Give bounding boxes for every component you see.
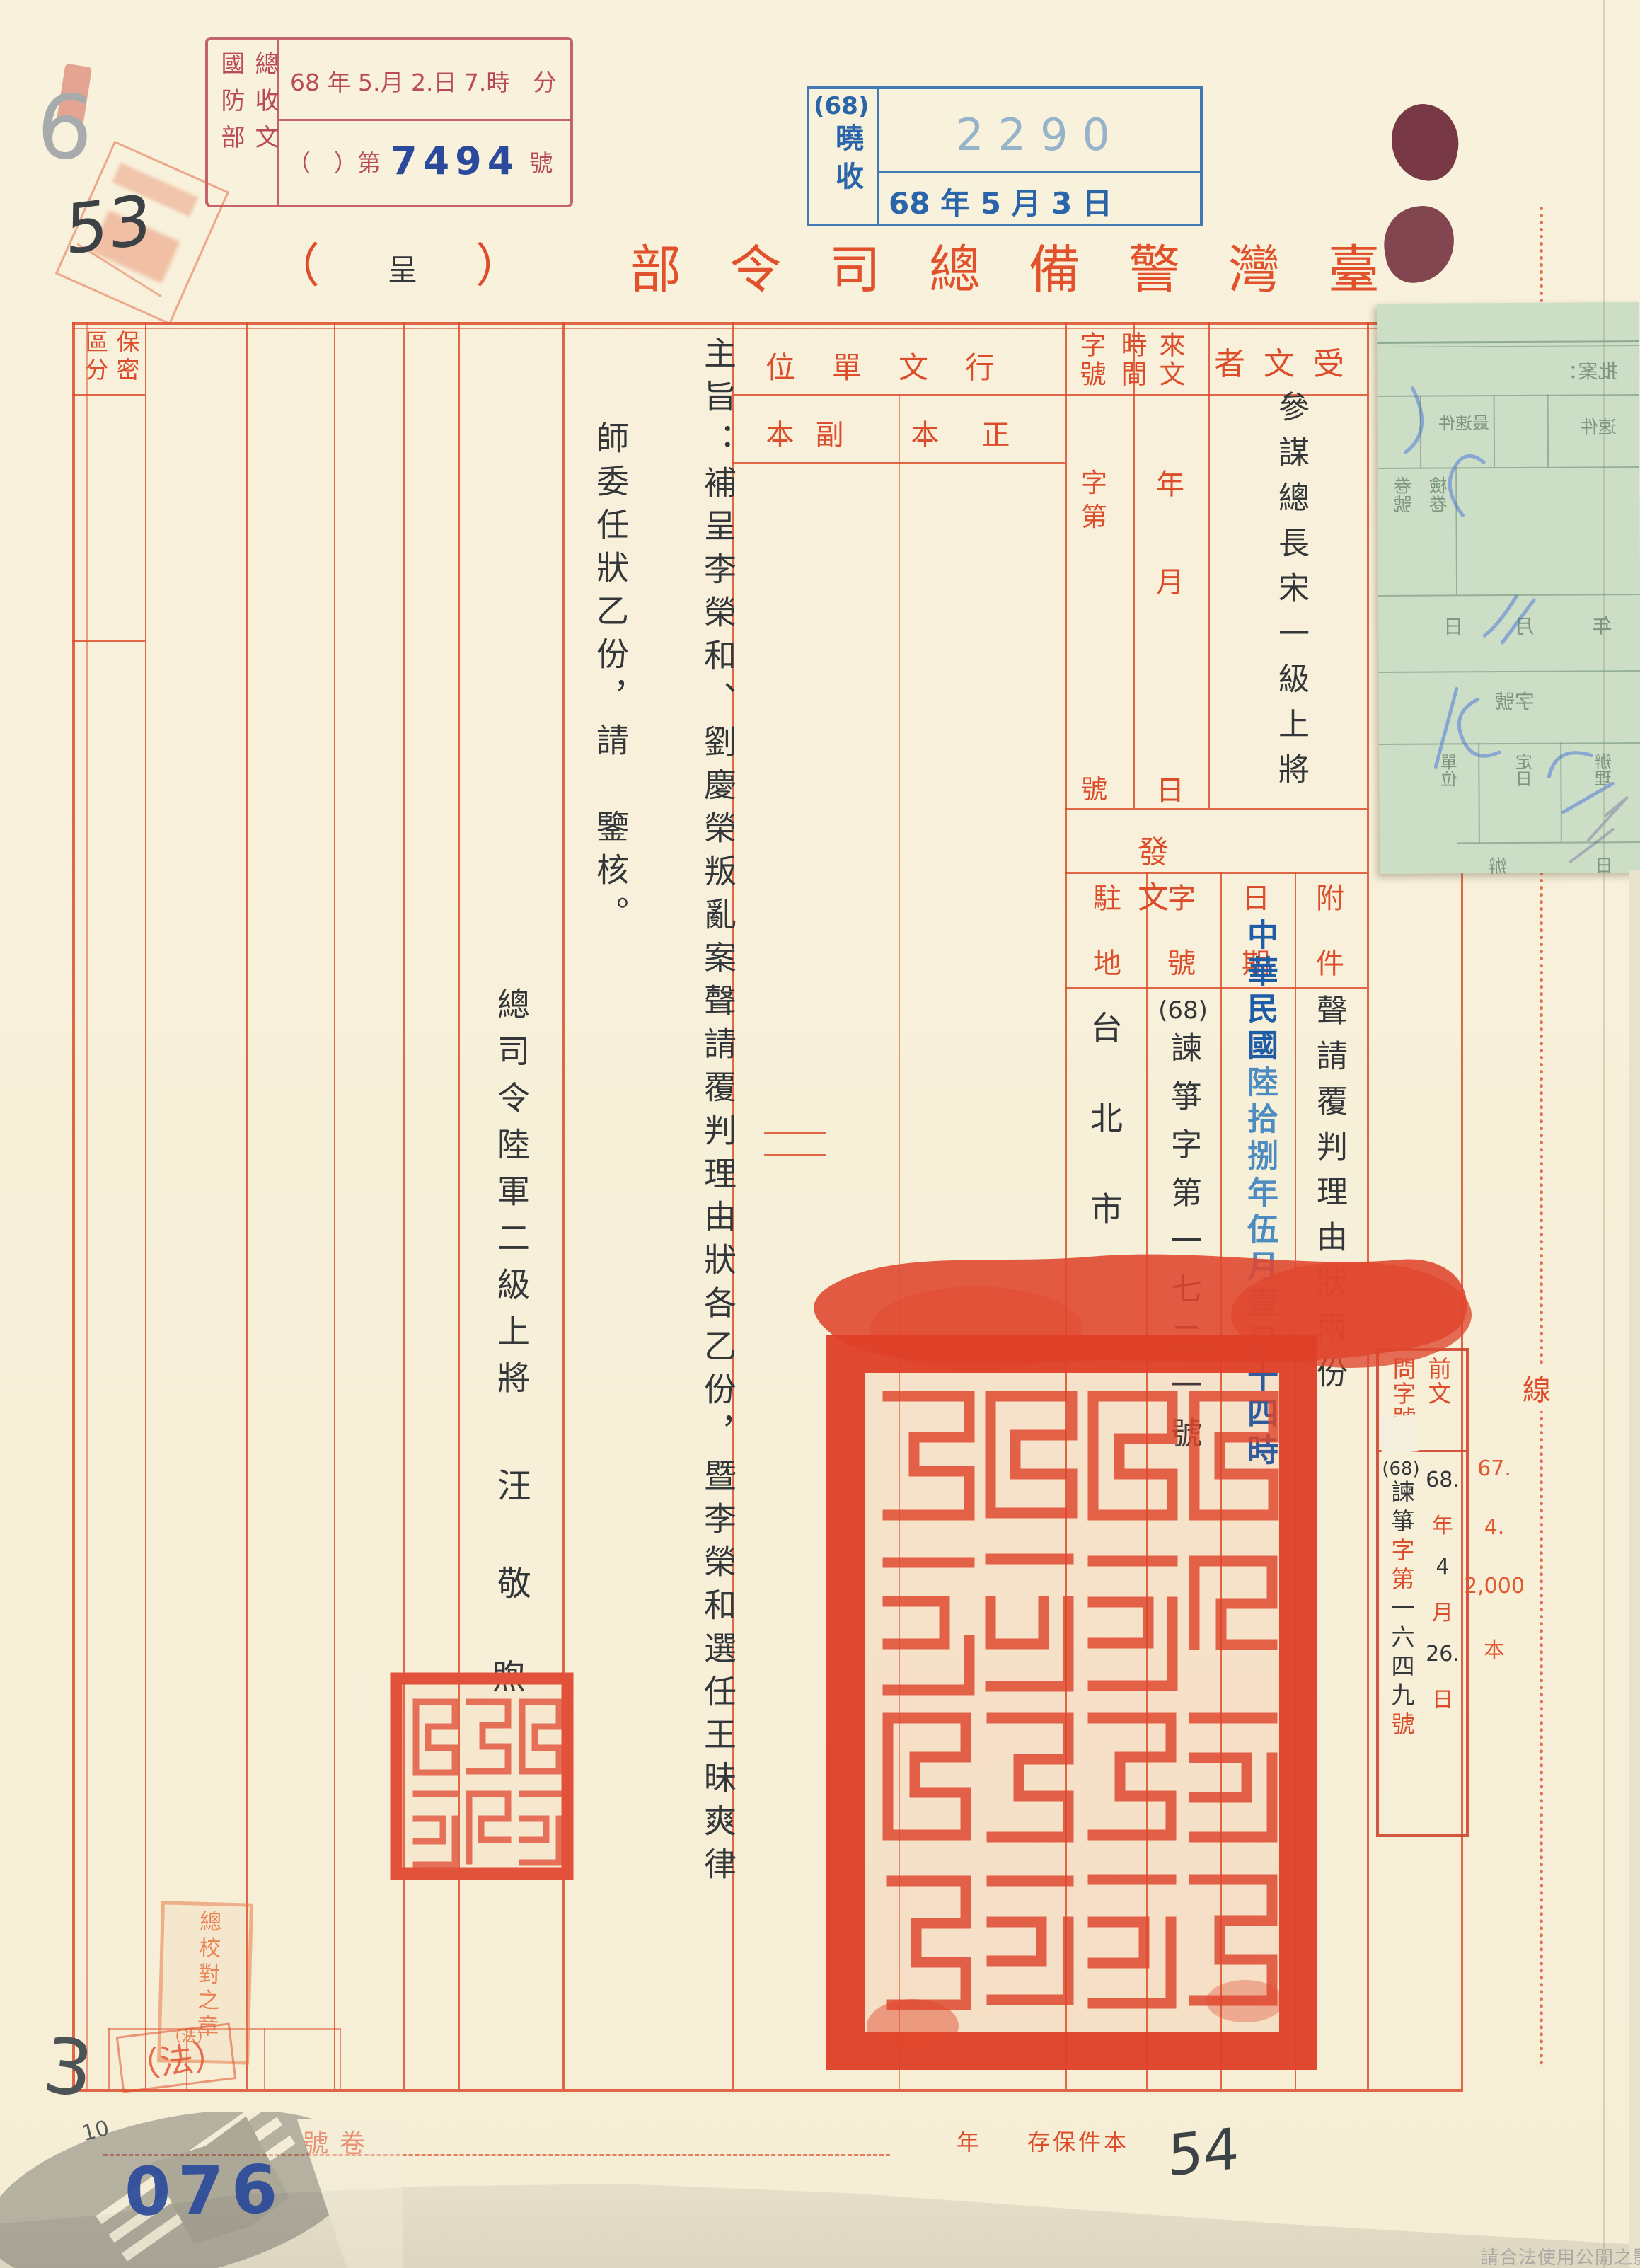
form-line [1133,322,1135,808]
form-line [72,394,145,396]
copy-primary-text: 正本 [911,412,1053,453]
receipt-no-open: （ ）第 [287,144,381,178]
proof-seal-text: 總校對之章 [190,1910,225,2042]
slip-label: 日 [1443,611,1463,640]
form-line [72,640,145,642]
header-sending-text: 發文 [1093,827,1341,917]
intake-prefix: (68) [814,92,869,120]
header-recipient: 受文者 [1211,338,1365,384]
slip-label: 字號 [1495,686,1535,715]
signer-name-2: 敬 [497,1555,531,1605]
intake-divider [877,89,879,224]
submit-paren-close: ） [475,228,522,296]
subject-label: 主旨： [699,336,737,466]
form-line [72,328,1463,329]
header-classification: 保密 區分 [79,330,142,385]
slip-label: 辦 [1489,852,1507,878]
header-recipient-text: 受文者 [1214,338,1363,384]
receipt-number: 7494 [391,139,519,183]
receipt-date-line: 68 年 5.月 2.日 7.時 分 [290,64,556,98]
print-run-1: 67. [1477,1456,1511,1481]
slip-label: 檢卷 [1426,476,1453,512]
receipt-stamp-divider [279,119,570,121]
form-line [86,322,88,2089]
unit-di: 第 [1081,495,1107,534]
usage-notice: 請合法使用公開之影像 [1480,2243,1640,2268]
header-copy-primary: 正本 [902,412,1061,453]
subject-col2: 師委任狀乙份，請 鑒核。 [587,421,634,939]
unit-zi: 字 [1081,461,1107,500]
bottom-keep-label: 本件保存 [1027,2124,1129,2157]
intake-date: 68 年 5 月 3 日 [889,180,1112,223]
org-title: 臺灣警備總司令部 [630,228,1472,303]
print-run-note: 67. 4. 2,000 本 [1473,1456,1515,1664]
recipient-value: 參謀總長宋一級上將 [1268,391,1313,798]
form-line [246,322,248,2089]
receipt-number-line: （ ）第 7494 號 [287,139,553,183]
signer-title: 總司令陸軍二級上將 [488,987,535,1408]
header-dispatch-text: 行文單位 [766,344,1032,387]
green-attachment-slip: 批案： 速件 最速件 檢卷 卷號 年 月 日 字號 辦理 定日 單位 日 辦 [1377,302,1640,874]
form-line [72,322,1463,325]
copy-secondary-text: 副本 [766,412,865,453]
law-stamp: （法） [116,2022,237,2093]
send-no-prefix: (68) [1158,996,1208,1025]
subject-col1: 補呈李榮和、劉慶榮叛亂案聲請覆判理由狀各乙份，暨李榮和選任王昧爽律 [699,466,737,1890]
garrison-large-seal [807,1223,1479,2076]
bottom-year-unit: 年 [957,2124,979,2157]
intake-label: 曉收 [826,123,867,200]
ink-blob [1384,98,1466,186]
form-line [340,2028,341,2089]
print-run-4: 本 [1484,1633,1505,1664]
header-incoming-no: 字號 [1071,331,1109,389]
slip-label: 月 [1514,611,1534,640]
slip-label: 速件 [1580,413,1617,439]
scanned-document-page: 線 （ 呈 ） 臺灣警備總司令部 總收文 國防部 68 年 5.月 2.日 7.… [0,0,1640,2268]
slip-label: 單位 [1438,753,1462,787]
folio-note-54: 54 [1167,2115,1239,2189]
submit-paren-open: （ [273,228,320,296]
print-run-2: 4. [1484,1515,1505,1540]
unit-day: 日 [1156,768,1184,809]
receipt-stamp-org: 總收文 國防部 [214,51,282,161]
submit-label: 呈 [388,246,417,289]
header-dispatch-unit: 行文單位 [736,344,1061,387]
header-station: 駐地 [1084,883,1125,1013]
slip-pen-scribbles [1377,302,1640,874]
intake-serial: 2290 [880,109,1200,161]
form-line [1065,808,1367,810]
header-copy-secondary: 副本 [736,412,895,453]
send-date-part1: 中華民國 [1242,919,1278,1066]
header-send-no: 字號 [1158,883,1199,1013]
form-line [764,1132,826,1134]
form-line [108,2028,110,2089]
commander-small-seal [388,1670,576,1882]
penc il-note-6: 6 [33,74,98,181]
form-line [145,322,146,2089]
mod-receipt-stamp: 總收文 國防部 68 年 5.月 2.日 7.時 分 （ ）第 7494 號 [205,37,573,207]
form-line [264,2028,265,2089]
header-sending: 發文 [1093,827,1341,917]
slip-label: 卷號 [1391,476,1417,513]
slip-label: 年 [1592,611,1612,639]
unit-year: 年 [1156,461,1184,502]
form-line [72,2089,1463,2092]
slip-caption: 批案： [1558,356,1617,384]
form-line [72,322,75,2089]
binding-line-label: 線 [1521,1364,1552,1411]
intake-stamp: (68) 曉收 2290 68 年 5 月 3 日 [807,86,1203,226]
form-line [1208,322,1210,808]
slip-mirrored-content: 批案： 速件 最速件 檢卷 卷號 年 月 日 字號 辦理 定日 單位 日 辦 [1377,302,1640,874]
slip-label: 定日 [1513,753,1537,787]
slip-label: 最速件 [1438,409,1489,434]
signer-name-1: 汪 [497,1458,531,1507]
pen-note-53: 53 [64,180,151,270]
bottom-keep-text: 本件保存 [1027,2124,1129,2157]
form-line [764,1154,826,1156]
unit-month: 月 [1156,559,1184,600]
pencil-note-3: 3 [39,2021,98,2114]
header-incoming-time: 來文 時間 [1112,331,1189,389]
subject-block: 主旨：補呈李榮和、劉慶榮叛亂案聲請覆判理由狀各乙份，暨李榮和選任王昧爽律 [695,336,741,2056]
receipt-no-close: 號 [529,144,553,178]
right-edge-band [1629,870,1640,2268]
page-number-stamp: 076 [124,2151,285,2231]
org-title-text: 臺灣警備總司令部 [630,228,1428,303]
unit-hao: 號 [1081,768,1107,806]
form-line [334,322,335,2089]
intake-divider [879,171,1200,173]
right-crease-line [1603,0,1605,2268]
